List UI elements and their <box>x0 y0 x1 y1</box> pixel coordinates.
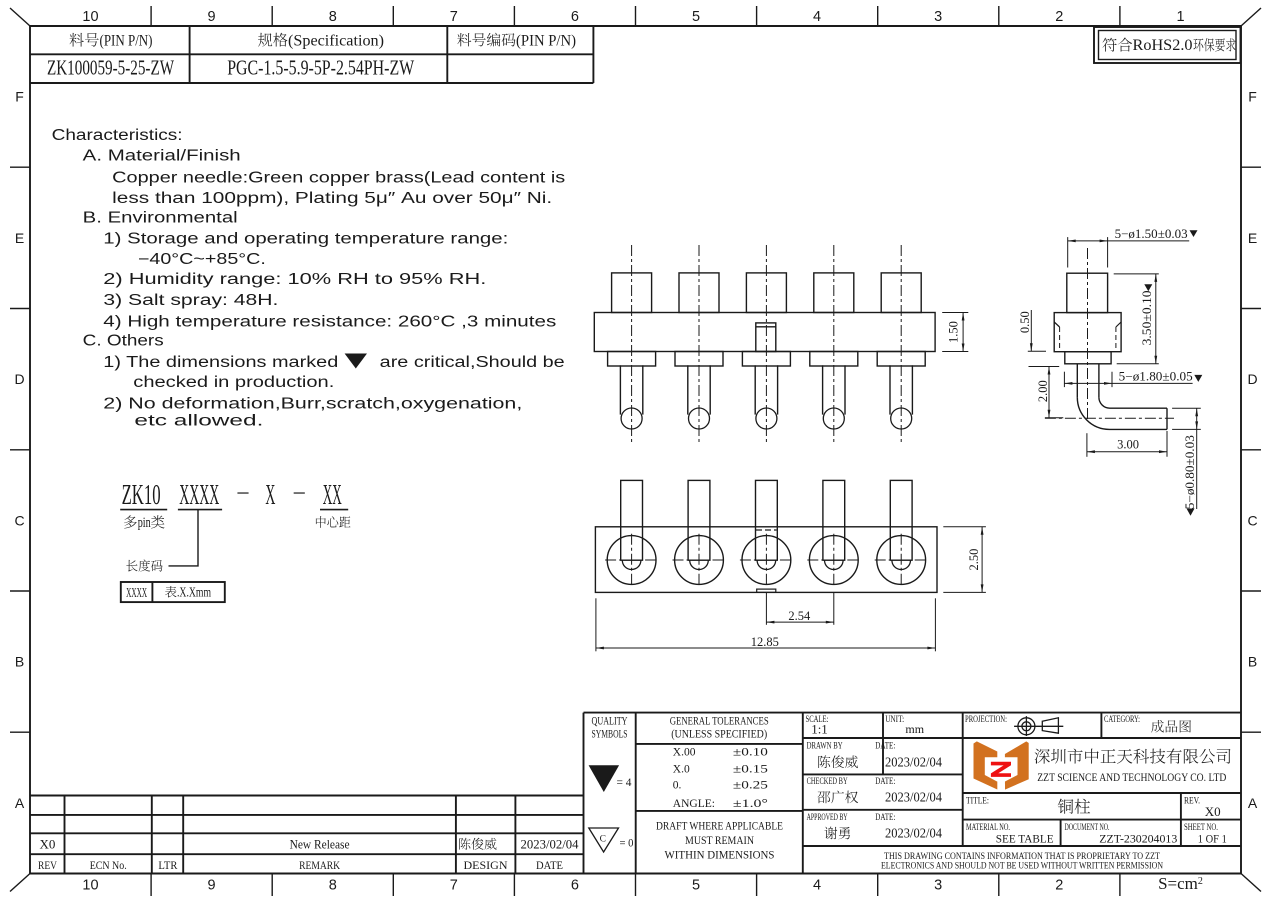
svg-text:−40°C~+85°C.: −40°C~+85°C. <box>138 251 266 268</box>
svg-text:REMARK: REMARK <box>299 860 341 872</box>
svg-text:CHECKED BY: CHECKED BY <box>807 777 848 787</box>
svg-text:DATE:: DATE: <box>875 742 895 752</box>
svg-text:DRAWN BY: DRAWN BY <box>807 742 843 752</box>
svg-text:APPROVED BY: APPROVED BY <box>807 813 848 823</box>
svg-text:= 4: = 4 <box>617 775 632 789</box>
svg-text:6: 6 <box>571 878 579 894</box>
svg-text:2) Humidity range: 10% RH to 9: 2) Humidity range: 10% RH to 95% RH. <box>103 271 486 288</box>
svg-text:QUALITY: QUALITY <box>592 715 628 727</box>
svg-text:2: 2 <box>1055 9 1063 25</box>
svg-text:less than 100ppm), Plating 5μ″: less than 100ppm), Plating 5μ″ Au over 5… <box>112 190 552 207</box>
svg-text:12.85: 12.85 <box>751 635 779 649</box>
svg-text:ELECTRONICS AND SHOULD NOT BE: ELECTRONICS AND SHOULD NOT BE USED WITHO… <box>881 862 1163 872</box>
svg-text:(Specification): (Specification) <box>288 32 384 49</box>
svg-text:F: F <box>1248 89 1257 105</box>
svg-text:E: E <box>15 230 24 246</box>
svg-text:ZK10: ZK10 <box>122 480 161 511</box>
svg-text:are critical,Should be: are critical,Should be <box>380 354 565 371</box>
svg-text:9: 9 <box>208 9 216 25</box>
svg-text:RoHS2.0: RoHS2.0 <box>1133 37 1193 54</box>
svg-text:2023/02/04: 2023/02/04 <box>521 837 579 852</box>
svg-text:ZK100059-5-25-ZW: ZK100059-5-25-ZW <box>47 56 174 80</box>
svg-text:checked in production.: checked in production. <box>133 374 334 391</box>
svg-text:DATE: DATE <box>536 860 563 872</box>
svg-text:ANGLE:: ANGLE: <box>673 798 715 810</box>
svg-text:±0.25: ±0.25 <box>733 780 768 792</box>
svg-text:New Release: New Release <box>290 838 350 852</box>
svg-text:S=cm2: S=cm2 <box>1158 874 1203 893</box>
svg-text:±0.10: ±0.10 <box>733 746 768 758</box>
svg-text:B. Environmental: B. Environmental <box>83 210 238 227</box>
svg-text:F: F <box>15 89 24 105</box>
svg-text:3: 3 <box>934 9 942 25</box>
svg-text:0.: 0. <box>673 780 682 792</box>
svg-text:PGC-1.5-5.9-5P-2.54PH-ZW: PGC-1.5-5.9-5P-2.54PH-ZW <box>227 56 414 80</box>
svg-text:7: 7 <box>450 9 458 25</box>
svg-text:A: A <box>15 795 25 811</box>
svg-text:8: 8 <box>329 878 337 894</box>
svg-text:1: 1 <box>1176 9 1184 25</box>
svg-text:1) The dimensions marked: 1) The dimensions marked <box>103 354 338 371</box>
svg-text:GENERAL TOLERANCES: GENERAL TOLERANCES <box>670 715 769 727</box>
svg-text:X.0: X.0 <box>673 763 690 775</box>
svg-text:CATEGORY:: CATEGORY: <box>1104 715 1140 725</box>
svg-text:A: A <box>1248 795 1258 811</box>
svg-text:3.00: 3.00 <box>1117 438 1139 452</box>
svg-text:X.00: X.00 <box>673 746 696 758</box>
svg-text:2023/02/04: 2023/02/04 <box>885 790 942 805</box>
svg-text:REV: REV <box>38 860 58 872</box>
svg-text:LTR: LTR <box>158 860 177 872</box>
svg-text:2.50: 2.50 <box>967 549 981 571</box>
svg-text:D: D <box>1247 371 1257 387</box>
svg-text:(UNLESS SPECIFIED): (UNLESS SPECIFIED) <box>671 729 767 741</box>
svg-text:X0: X0 <box>1205 804 1221 819</box>
svg-text:6: 6 <box>571 9 579 25</box>
svg-text:C: C <box>600 835 606 845</box>
svg-text:DATE:: DATE: <box>875 813 895 823</box>
svg-text:(PIN P/N): (PIN P/N) <box>516 32 576 49</box>
svg-text:REV.: REV. <box>1184 797 1200 807</box>
svg-text:5: 5 <box>692 9 700 25</box>
svg-text:2.54: 2.54 <box>788 609 811 623</box>
svg-text:7: 7 <box>450 878 458 894</box>
svg-text:ECN No.: ECN No. <box>90 860 127 872</box>
svg-text:DESIGN: DESIGN <box>464 860 509 872</box>
svg-text:5−ø1.50±0.03: 5−ø1.50±0.03 <box>1115 227 1188 241</box>
svg-text:4: 4 <box>813 878 821 894</box>
svg-text:etc allowed.: etc allowed. <box>134 413 263 430</box>
svg-text:−: − <box>236 481 250 507</box>
svg-text:4) High temperature resistance: 4) High temperature resistance: 260°C ,3… <box>103 313 556 330</box>
svg-text:1 OF 1: 1 OF 1 <box>1198 832 1227 846</box>
svg-text:C: C <box>14 512 24 528</box>
svg-text:UNIT:: UNIT: <box>885 715 904 725</box>
svg-text:D: D <box>14 371 24 387</box>
svg-text:A. Material/Finish: A. Material/Finish <box>83 148 241 165</box>
svg-text:WITHIN DIMENSIONS: WITHIN DIMENSIONS <box>665 849 775 861</box>
svg-text:X0: X0 <box>40 837 56 852</box>
svg-text:±1.0°: ±1.0° <box>733 798 769 810</box>
svg-text:ZZT-230204013: ZZT-230204013 <box>1099 832 1177 846</box>
svg-text:2.00: 2.00 <box>1036 380 1050 402</box>
svg-text:−: − <box>292 481 306 507</box>
svg-text:Copper needle:Green copper bra: Copper needle:Green copper brass(Lead co… <box>112 170 565 187</box>
svg-text:1) Storage and operating tempe: 1) Storage and operating temperature ran… <box>103 231 508 248</box>
svg-text:10: 10 <box>82 9 98 25</box>
svg-text:X: X <box>265 480 275 511</box>
svg-text:8: 8 <box>329 9 337 25</box>
svg-text:PROJECTION:: PROJECTION: <box>965 715 1007 725</box>
svg-text:SYMBOLS: SYMBOLS <box>592 729 628 741</box>
svg-text:4: 4 <box>813 9 821 25</box>
svg-text:B: B <box>15 654 24 670</box>
svg-text:3.50±0.10: 3.50±0.10 <box>1140 290 1154 345</box>
svg-text:2) No deformation,Burr,scratch: 2) No deformation,Burr,scratch,oxygenati… <box>103 396 522 413</box>
svg-text:mm: mm <box>905 722 924 736</box>
svg-text:9: 9 <box>208 878 216 894</box>
svg-text:XX: XX <box>323 480 342 511</box>
svg-text:DRAFT WHERE APPLICABLE: DRAFT WHERE APPLICABLE <box>656 821 783 833</box>
svg-text:2023/02/04: 2023/02/04 <box>885 826 942 841</box>
svg-text:ZZT SCIENCE AND TECHNOLOGY CO.: ZZT SCIENCE AND TECHNOLOGY CO. LTD <box>1037 770 1226 784</box>
svg-text:pin: pin <box>138 515 152 531</box>
svg-text:0.50: 0.50 <box>1018 311 1032 333</box>
svg-text:2023/02/04: 2023/02/04 <box>885 754 942 769</box>
svg-text:.X.Xmm: .X.Xmm <box>177 584 211 599</box>
svg-text:10: 10 <box>82 878 98 894</box>
svg-text:3: 3 <box>934 878 942 894</box>
svg-text:E: E <box>1248 230 1257 246</box>
svg-text:Characteristics:: Characteristics: <box>52 127 183 144</box>
svg-text:MUST REMAIN: MUST REMAIN <box>685 835 755 847</box>
svg-text:5−ø0.80±0.03: 5−ø0.80±0.03 <box>1183 435 1197 509</box>
svg-text:5−ø1.80±0.05: 5−ø1.80±0.05 <box>1119 369 1193 383</box>
svg-text:= 0: = 0 <box>620 836 634 850</box>
svg-text:THIS DRAWING CONTAINS INFORMAT: THIS DRAWING CONTAINS INFORMATION THAT I… <box>884 852 1160 862</box>
svg-text:C. Others: C. Others <box>83 333 164 350</box>
svg-text:SEE TABLE: SEE TABLE <box>996 832 1054 846</box>
svg-text:±0.15: ±0.15 <box>733 763 768 775</box>
svg-text:DATE:: DATE: <box>875 777 895 787</box>
svg-text:2: 2 <box>1055 878 1063 894</box>
svg-text:XXXX: XXXX <box>179 480 219 511</box>
svg-text:1:1: 1:1 <box>811 722 828 737</box>
svg-text:1.50: 1.50 <box>947 321 961 343</box>
svg-text:TITLE:: TITLE: <box>966 797 989 807</box>
svg-text:B: B <box>1248 654 1257 670</box>
svg-text:3) Salt spray: 48H.: 3) Salt spray: 48H. <box>103 292 278 309</box>
svg-text:C: C <box>1247 512 1257 528</box>
svg-text:5: 5 <box>692 878 700 894</box>
svg-text:(PIN P/N): (PIN P/N) <box>100 32 153 49</box>
svg-text:XXXX: XXXX <box>126 586 147 601</box>
